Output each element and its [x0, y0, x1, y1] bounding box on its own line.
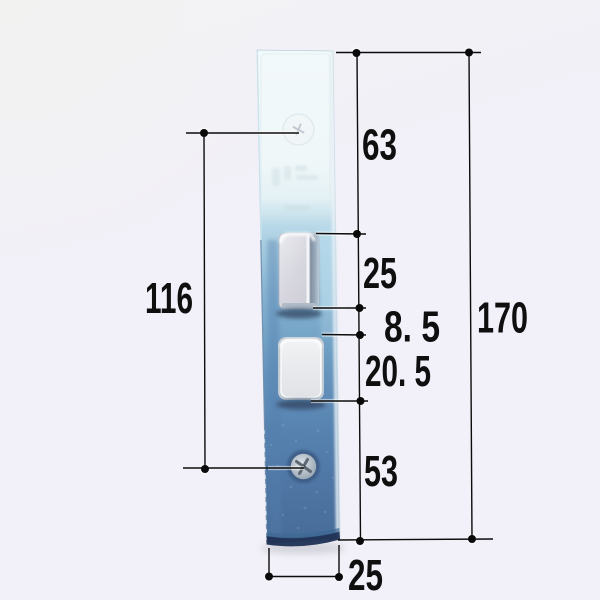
svg-text:8. 5: 8. 5	[384, 303, 440, 352]
svg-text:25: 25	[363, 249, 397, 298]
svg-text:170: 170	[477, 294, 528, 343]
svg-text:25: 25	[348, 551, 383, 600]
svg-text:53: 53	[364, 447, 398, 496]
svg-text:63: 63	[362, 121, 397, 170]
svg-text:20. 5: 20. 5	[365, 347, 431, 396]
svg-text:116: 116	[145, 274, 193, 323]
